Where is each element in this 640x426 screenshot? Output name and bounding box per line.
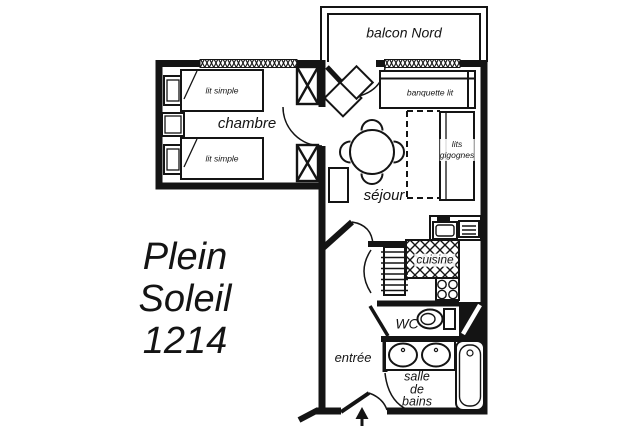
bathroom-door-arc bbox=[385, 373, 408, 410]
duct-shaft-icon bbox=[459, 302, 484, 337]
fridge-icon bbox=[459, 221, 479, 237]
single-bed-icon bbox=[181, 138, 263, 179]
bathroom-fixtures bbox=[385, 341, 484, 410]
wc-fixtures bbox=[418, 302, 485, 337]
sink-icon bbox=[433, 222, 457, 239]
floorplan-drawing bbox=[0, 0, 640, 426]
bedroom-door-icon bbox=[283, 107, 322, 146]
floorplan-page: balcon Nord chambre lit simple lit simpl… bbox=[0, 0, 640, 426]
nesting-beds-pullout-dashed bbox=[407, 111, 440, 198]
nightstand-icon bbox=[164, 145, 182, 174]
wc-door-leaf bbox=[370, 306, 388, 336]
dining-table-icon bbox=[340, 120, 404, 184]
tv-stand-icon bbox=[329, 168, 348, 202]
single-bed-icon bbox=[181, 70, 263, 111]
nesting-beds-icon bbox=[440, 112, 474, 200]
shelf-unit-icon bbox=[381, 247, 408, 295]
living-furniture bbox=[325, 66, 475, 202]
nightstand-icon bbox=[162, 113, 184, 136]
wardrobe-icon bbox=[297, 145, 318, 181]
washbasin-icon bbox=[389, 344, 417, 367]
bathtub-icon bbox=[456, 341, 484, 410]
toilet-icon bbox=[418, 309, 456, 329]
kitchen-floor-hatch bbox=[406, 240, 459, 278]
entrance-door-arc bbox=[369, 393, 387, 410]
entrance-arrow-icon bbox=[356, 407, 369, 426]
nightstand-icon bbox=[164, 76, 182, 105]
entrance-door-leaf bbox=[341, 393, 369, 412]
kitchen-fixtures bbox=[381, 216, 481, 300]
balcony-walls bbox=[321, 7, 487, 62]
washbasin-icon bbox=[422, 344, 450, 367]
hall-door-arc bbox=[364, 250, 371, 293]
window-icon bbox=[200, 60, 460, 68]
bedroom-furniture bbox=[162, 67, 318, 181]
bench-bed-icon bbox=[380, 71, 475, 108]
stove-icon bbox=[436, 278, 459, 300]
wardrobe-icon bbox=[297, 67, 318, 104]
